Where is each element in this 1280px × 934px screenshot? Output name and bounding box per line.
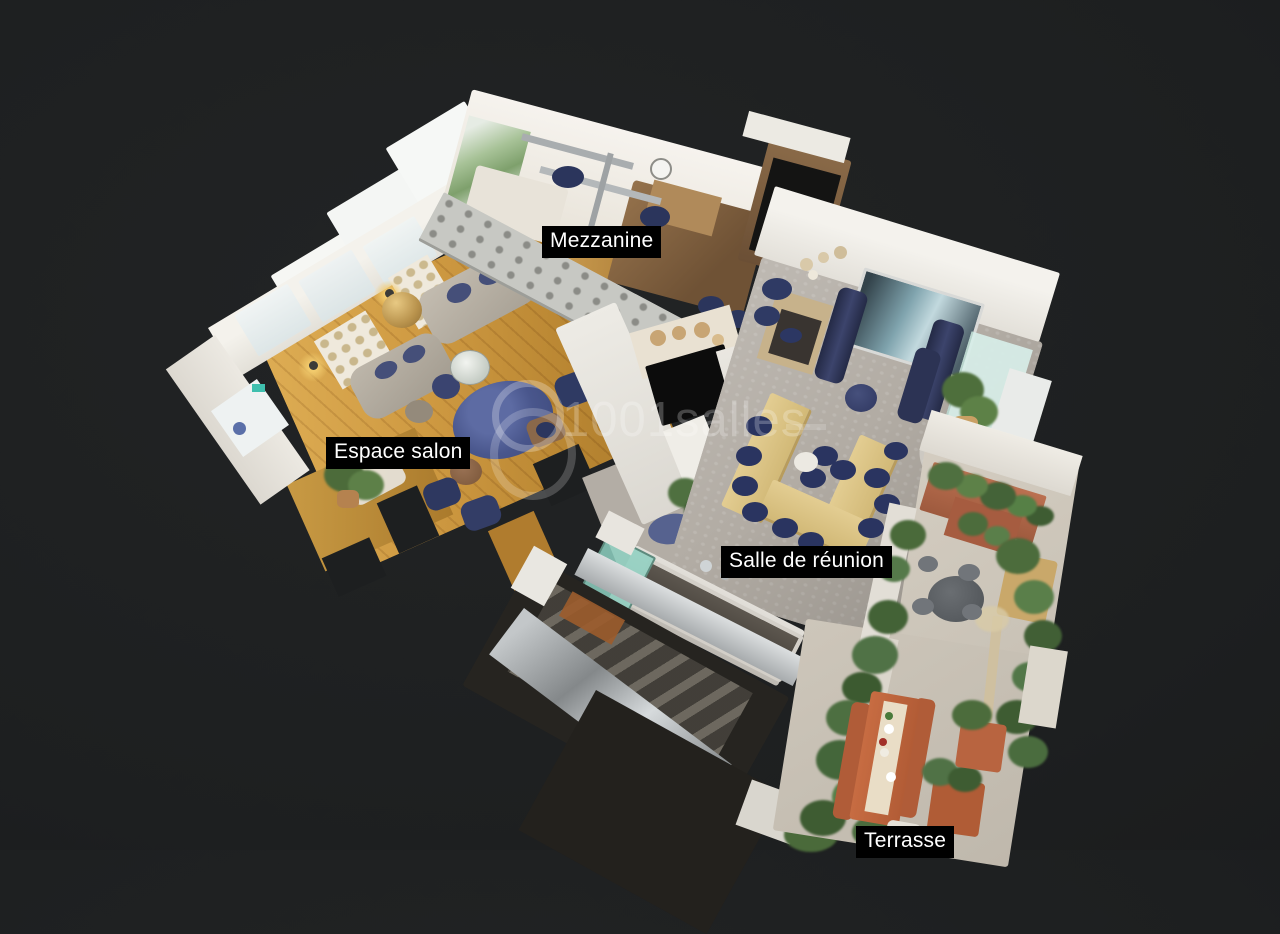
bistro-chair bbox=[958, 564, 980, 581]
room-label-terrasse: Terrasse bbox=[856, 826, 954, 858]
table-item bbox=[885, 712, 893, 720]
bistro-chair bbox=[912, 598, 934, 615]
room-label-salle-de-reunion: Salle de réunion bbox=[721, 546, 892, 578]
wall-basket-decor bbox=[834, 246, 847, 259]
gold-side-table bbox=[382, 292, 422, 328]
planter-greens bbox=[928, 462, 964, 490]
pouf bbox=[405, 400, 433, 423]
room-label-espace-salon: Espace salon bbox=[326, 437, 470, 469]
dish bbox=[880, 748, 889, 757]
armchair-seat bbox=[536, 422, 556, 438]
wall-basket-decor bbox=[818, 252, 829, 263]
meeting-chair bbox=[742, 502, 768, 522]
meeting-chair bbox=[858, 518, 884, 538]
bean-bag bbox=[762, 278, 792, 300]
cabinet-item bbox=[780, 328, 802, 343]
meeting-chair bbox=[746, 416, 772, 436]
wall-basket-decor bbox=[808, 270, 818, 280]
plant bbox=[948, 766, 982, 792]
glass-side-table bbox=[450, 350, 490, 385]
meeting-chair bbox=[884, 442, 908, 460]
shelf-hat bbox=[694, 322, 710, 338]
meeting-chair bbox=[830, 460, 856, 480]
plant bbox=[1008, 736, 1048, 768]
planter-greens bbox=[958, 512, 988, 536]
plant bbox=[1014, 580, 1054, 614]
blue-chair-dot bbox=[233, 422, 246, 435]
wall-lamp bbox=[309, 361, 318, 370]
wall-clock bbox=[650, 158, 672, 180]
plant bbox=[890, 520, 926, 550]
counter-item bbox=[700, 560, 712, 572]
plant bbox=[852, 636, 898, 674]
room-label-mezzanine: Mezzanine bbox=[542, 226, 661, 258]
shelf-hat bbox=[672, 326, 686, 340]
shelf-hat bbox=[650, 330, 666, 346]
dollhouse-3d-view[interactable]: 1001salles Mezzanine Espace salon Salle … bbox=[0, 0, 1280, 850]
bistro-chair bbox=[918, 556, 938, 572]
bean-bag bbox=[754, 306, 780, 326]
office-chair bbox=[552, 166, 584, 188]
dish bbox=[884, 724, 894, 734]
meeting-chair bbox=[772, 518, 798, 538]
exit-sign bbox=[252, 384, 265, 392]
plant bbox=[996, 538, 1040, 574]
meeting-chair bbox=[736, 446, 762, 466]
office-chair bbox=[640, 206, 670, 228]
table-item bbox=[879, 738, 887, 746]
plant bbox=[868, 600, 908, 634]
plant bbox=[952, 700, 992, 730]
plant-pot bbox=[337, 490, 359, 508]
dish bbox=[886, 772, 896, 782]
small-white-table bbox=[794, 452, 818, 472]
bean-bag bbox=[845, 384, 877, 412]
wall-basket-decor bbox=[800, 258, 813, 271]
meeting-chair bbox=[732, 476, 758, 496]
meeting-chair bbox=[864, 468, 890, 488]
bistro-chair bbox=[962, 604, 982, 620]
